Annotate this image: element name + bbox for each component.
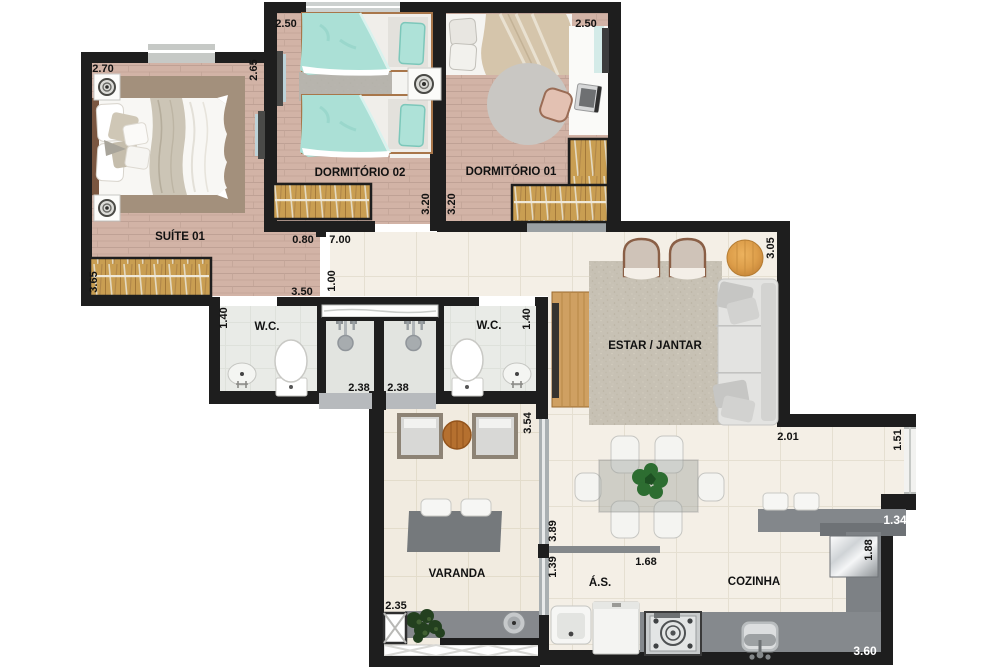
svg-text:VARANDA: VARANDA bbox=[429, 568, 486, 580]
svg-text:3.60: 3.60 bbox=[853, 644, 877, 658]
svg-text:W.C.: W.C. bbox=[477, 320, 502, 332]
svg-text:3.65: 3.65 bbox=[88, 271, 100, 292]
svg-text:1.51: 1.51 bbox=[892, 429, 904, 450]
svg-text:7.00: 7.00 bbox=[329, 234, 350, 246]
svg-text:2.50: 2.50 bbox=[575, 18, 596, 30]
svg-text:DORMITÓRIO 02: DORMITÓRIO 02 bbox=[315, 166, 406, 179]
svg-text:COZINHA: COZINHA bbox=[728, 576, 780, 588]
svg-text:1.39: 1.39 bbox=[547, 556, 559, 577]
svg-text:W.C.: W.C. bbox=[255, 321, 280, 333]
svg-text:Á.S.: Á.S. bbox=[589, 576, 611, 589]
svg-text:2.70: 2.70 bbox=[92, 63, 113, 75]
svg-text:ESTAR / JANTAR: ESTAR / JANTAR bbox=[608, 340, 702, 352]
svg-text:3.05: 3.05 bbox=[765, 237, 777, 258]
svg-text:0.80: 0.80 bbox=[292, 234, 313, 246]
svg-text:3.89: 3.89 bbox=[547, 520, 559, 541]
svg-text:2.01: 2.01 bbox=[777, 431, 798, 443]
svg-text:2.50: 2.50 bbox=[275, 18, 296, 30]
svg-text:1.40: 1.40 bbox=[521, 308, 533, 329]
svg-text:3.20: 3.20 bbox=[446, 193, 458, 214]
svg-text:1.00: 1.00 bbox=[326, 270, 338, 291]
svg-text:1.34: 1.34 bbox=[883, 513, 907, 527]
svg-text:1.88: 1.88 bbox=[863, 539, 875, 560]
svg-text:2.65: 2.65 bbox=[248, 59, 260, 80]
svg-text:3.20: 3.20 bbox=[420, 193, 432, 214]
svg-text:2.38: 2.38 bbox=[387, 382, 408, 394]
svg-text:3.50: 3.50 bbox=[291, 286, 312, 298]
svg-text:3.54: 3.54 bbox=[522, 411, 534, 433]
svg-text:DORMITÓRIO 01: DORMITÓRIO 01 bbox=[466, 165, 557, 178]
svg-text:1.68: 1.68 bbox=[635, 556, 656, 568]
svg-text:2.35: 2.35 bbox=[385, 600, 406, 612]
svg-text:2.38: 2.38 bbox=[348, 382, 369, 394]
svg-text:1.40: 1.40 bbox=[218, 307, 230, 328]
svg-text:SUÍTE 01: SUÍTE 01 bbox=[155, 230, 205, 243]
